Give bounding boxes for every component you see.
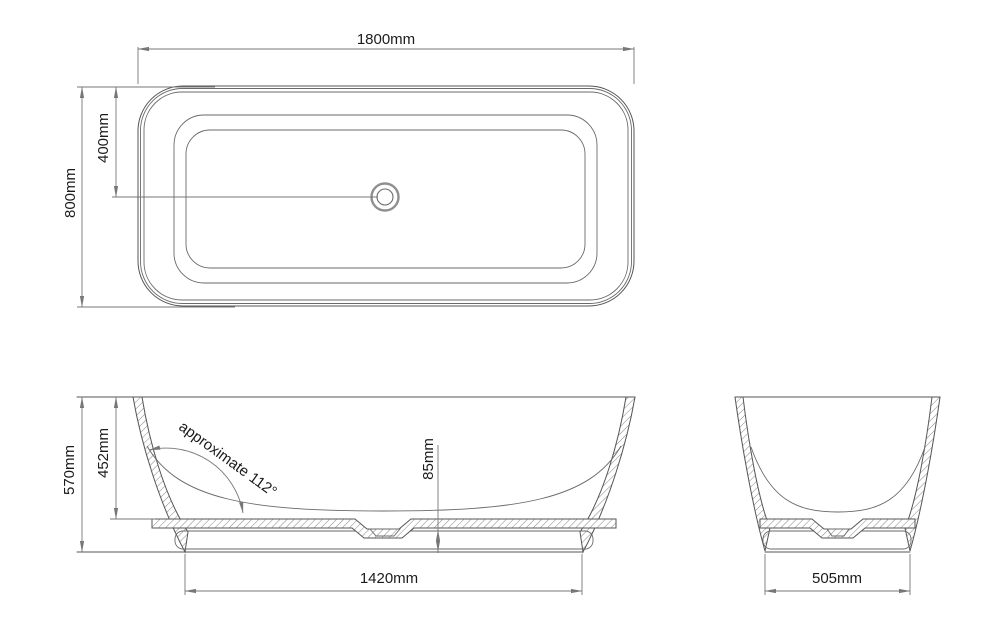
top-view-outer-outline: [138, 86, 634, 306]
angle-label: approximate 112°: [176, 418, 280, 500]
top-view-floor-edge: [186, 130, 585, 268]
top-view-basin-edge: [174, 115, 597, 283]
dim-1420-label: 1420mm: [360, 570, 418, 587]
drawing-sheet: 1800mm 800mm 400mm 570mm 452mm: [0, 0, 994, 625]
top-view-rim-inner-edge: [144, 92, 628, 300]
side-view-left-wall-section: [133, 397, 188, 552]
top-view-outer-outline-2: [141, 89, 632, 304]
dim-1800-label: 1800mm: [357, 31, 415, 48]
dim-452-label: 452mm: [95, 428, 112, 478]
end-view: 505mm: [735, 397, 940, 595]
top-view: 1800mm 800mm 400mm: [62, 31, 634, 307]
drain-inner-circle: [377, 189, 393, 205]
side-view-right-wall-section: [580, 397, 635, 552]
technical-drawing: 1800mm 800mm 400mm 570mm 452mm: [0, 0, 994, 625]
dim-505-label: 505mm: [812, 570, 862, 587]
side-view: 570mm 452mm approximate 112° 85mm 1420mm: [61, 397, 635, 595]
dim-570-label: 570mm: [61, 445, 78, 495]
end-view-basin-silhouette: [751, 447, 925, 512]
dim-400-label: 400mm: [95, 113, 112, 163]
dim-85-label: 85mm: [420, 438, 437, 480]
dim-1800-extension-lines: [138, 47, 634, 84]
dim-800-label: 800mm: [62, 168, 79, 218]
